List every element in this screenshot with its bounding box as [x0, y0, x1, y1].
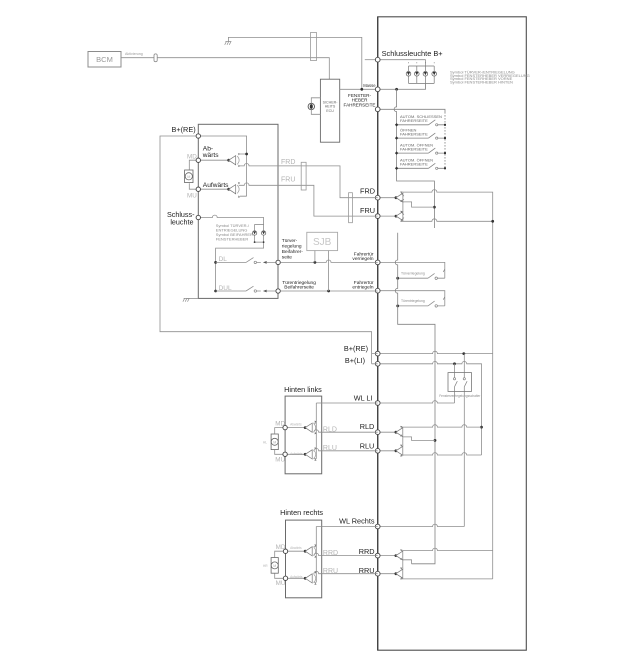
- svg-text:FRU: FRU: [281, 176, 295, 183]
- svg-text:WL Rechts: WL Rechts: [339, 517, 375, 526]
- svg-text:FAHRERSEITE: FAHRERSEITE: [400, 132, 428, 137]
- svg-text:MU: MU: [275, 457, 285, 464]
- svg-text:RRD: RRD: [359, 547, 375, 556]
- svg-text:M: M: [187, 175, 190, 179]
- svg-text:ECU: ECU: [326, 109, 334, 113]
- svg-text:M: M: [273, 440, 276, 444]
- svg-text:Beifahrerseite: Beifahrerseite: [284, 285, 314, 291]
- svg-text:B+(RE): B+(RE): [172, 125, 196, 134]
- svg-text:RRD: RRD: [323, 550, 338, 557]
- svg-text:Türentriegelung: Türentriegelung: [401, 299, 425, 303]
- svg-text:FAHRERSEITE: FAHRERSEITE: [344, 103, 376, 108]
- svg-text:HL: HL: [263, 440, 267, 444]
- svg-text:HR: HR: [263, 564, 268, 568]
- svg-text:riegelung: riegelung: [282, 244, 302, 250]
- svg-text:SJB: SJB: [313, 237, 332, 248]
- svg-text:FAHRERSEITE: FAHRERSEITE: [400, 118, 428, 123]
- svg-text:entriegeln: entriegeln: [352, 285, 373, 291]
- svg-text:FENSTERHEBER: FENSTERHEBER: [216, 237, 249, 242]
- svg-text:RLD: RLD: [323, 426, 337, 433]
- svg-text:DL: DL: [219, 256, 228, 263]
- svg-text:Aufwärts: Aufwärts: [203, 182, 229, 189]
- svg-text:Hinten rechts: Hinten rechts: [280, 508, 323, 517]
- svg-text:seite: seite: [282, 255, 292, 261]
- svg-text:Abwärts: Abwärts: [290, 546, 302, 550]
- svg-text:Türver-: Türver-: [282, 238, 298, 244]
- svg-text:Hinten links: Hinten links: [284, 385, 322, 394]
- svg-text:Beifahrer-: Beifahrer-: [282, 249, 303, 255]
- svg-text:Aufwärts: Aufwärts: [290, 452, 303, 456]
- svg-text:Aktivierung: Aktivierung: [125, 52, 143, 56]
- svg-text:Abwärts: Abwärts: [290, 422, 302, 426]
- svg-text:FRD: FRD: [281, 159, 295, 166]
- svg-text:Türverriegelung: Türverriegelung: [401, 271, 425, 275]
- svg-text:RLU: RLU: [323, 445, 337, 452]
- svg-text:RLU: RLU: [360, 442, 375, 451]
- svg-text:RRU: RRU: [323, 568, 338, 575]
- svg-text:MU: MU: [276, 580, 286, 587]
- svg-text:wärts: wärts: [202, 152, 219, 159]
- svg-text:MU: MU: [187, 193, 197, 200]
- svg-text:Fensterverriegelungsschalter: Fensterverriegelungsschalter: [439, 394, 481, 398]
- svg-text:Symbol FENSTERHEBER HINTEN: Symbol FENSTERHEBER HINTEN: [450, 79, 513, 84]
- svg-text:FRD: FRD: [360, 187, 375, 196]
- svg-text:BCM: BCM: [96, 55, 113, 64]
- svg-text:WL LI: WL LI: [354, 393, 373, 402]
- svg-text:Schlussleuchte B+: Schlussleuchte B+: [382, 49, 443, 58]
- svg-text:Masse: Masse: [363, 83, 376, 88]
- svg-text:B+(LI): B+(LI): [345, 356, 365, 365]
- svg-text:FAHRERSEITE: FAHRERSEITE: [400, 147, 428, 152]
- svg-text:M: M: [273, 564, 276, 568]
- svg-text:FAHRERSEITE: FAHRERSEITE: [400, 162, 428, 167]
- svg-text:RLD: RLD: [360, 422, 375, 431]
- svg-text:B+(RE): B+(RE): [344, 344, 368, 353]
- svg-text:leuchte: leuchte: [170, 218, 193, 227]
- svg-text:verriegeln: verriegeln: [352, 256, 373, 262]
- svg-text:FRU: FRU: [360, 206, 375, 215]
